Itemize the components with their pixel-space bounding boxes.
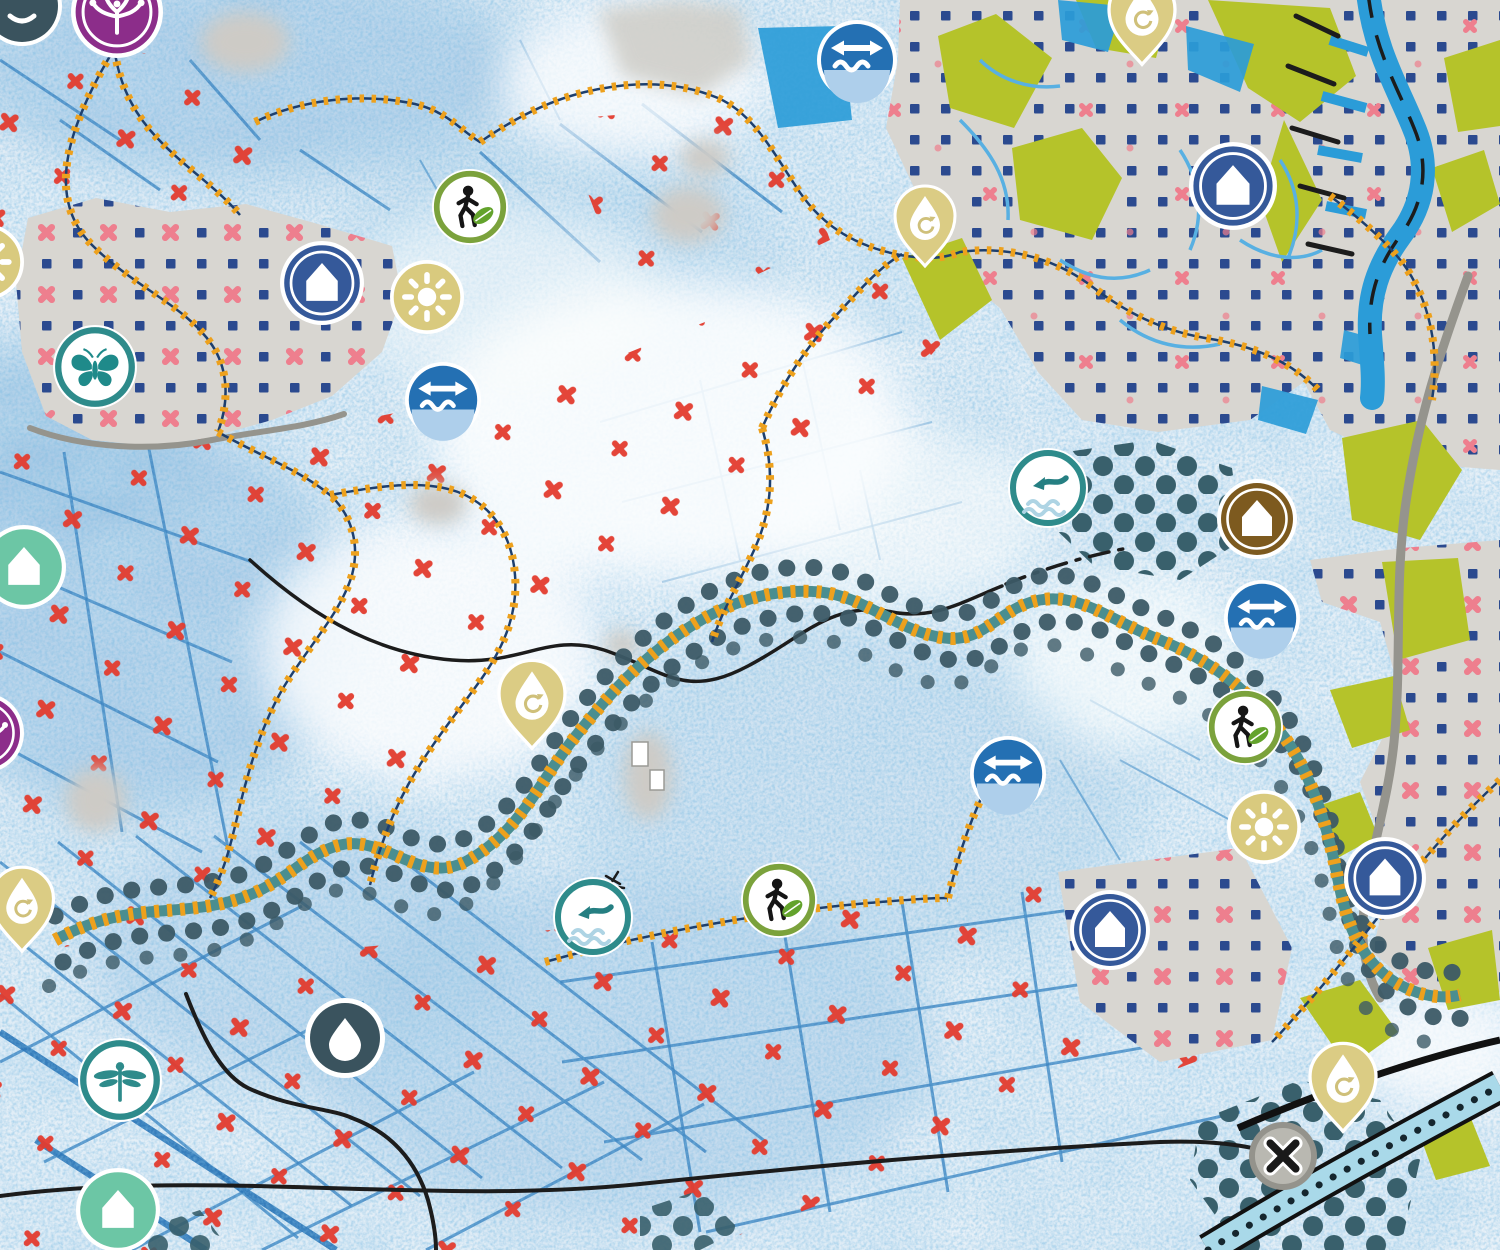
marker-house-blue[interactable] <box>1070 890 1150 970</box>
marker-house-blue[interactable] <box>1189 142 1277 230</box>
map-canvas[interactable] <box>0 0 1500 1250</box>
marker-house-brown[interactable] <box>1217 479 1297 559</box>
marker-dragonfly[interactable] <box>78 1038 162 1122</box>
marker-boat-teal[interactable] <box>1008 448 1088 528</box>
marker-house-blue[interactable] <box>280 241 364 325</box>
marker-house-mint[interactable] <box>76 1168 160 1250</box>
marker-boat-teal[interactable] <box>553 877 633 957</box>
marker-x-barrier[interactable] <box>1249 1122 1317 1190</box>
marker-sun-khaki[interactable] <box>390 260 464 334</box>
marker-walk-leaf[interactable] <box>1207 689 1283 765</box>
marker-butterfly[interactable] <box>53 325 137 409</box>
marker-walk-leaf[interactable] <box>432 169 508 245</box>
marker-walk-leaf[interactable] <box>741 862 817 938</box>
marker-house-blue[interactable] <box>1344 837 1426 919</box>
marker-sun-khaki[interactable] <box>1227 790 1301 864</box>
marker-drop-dark[interactable] <box>305 998 385 1078</box>
